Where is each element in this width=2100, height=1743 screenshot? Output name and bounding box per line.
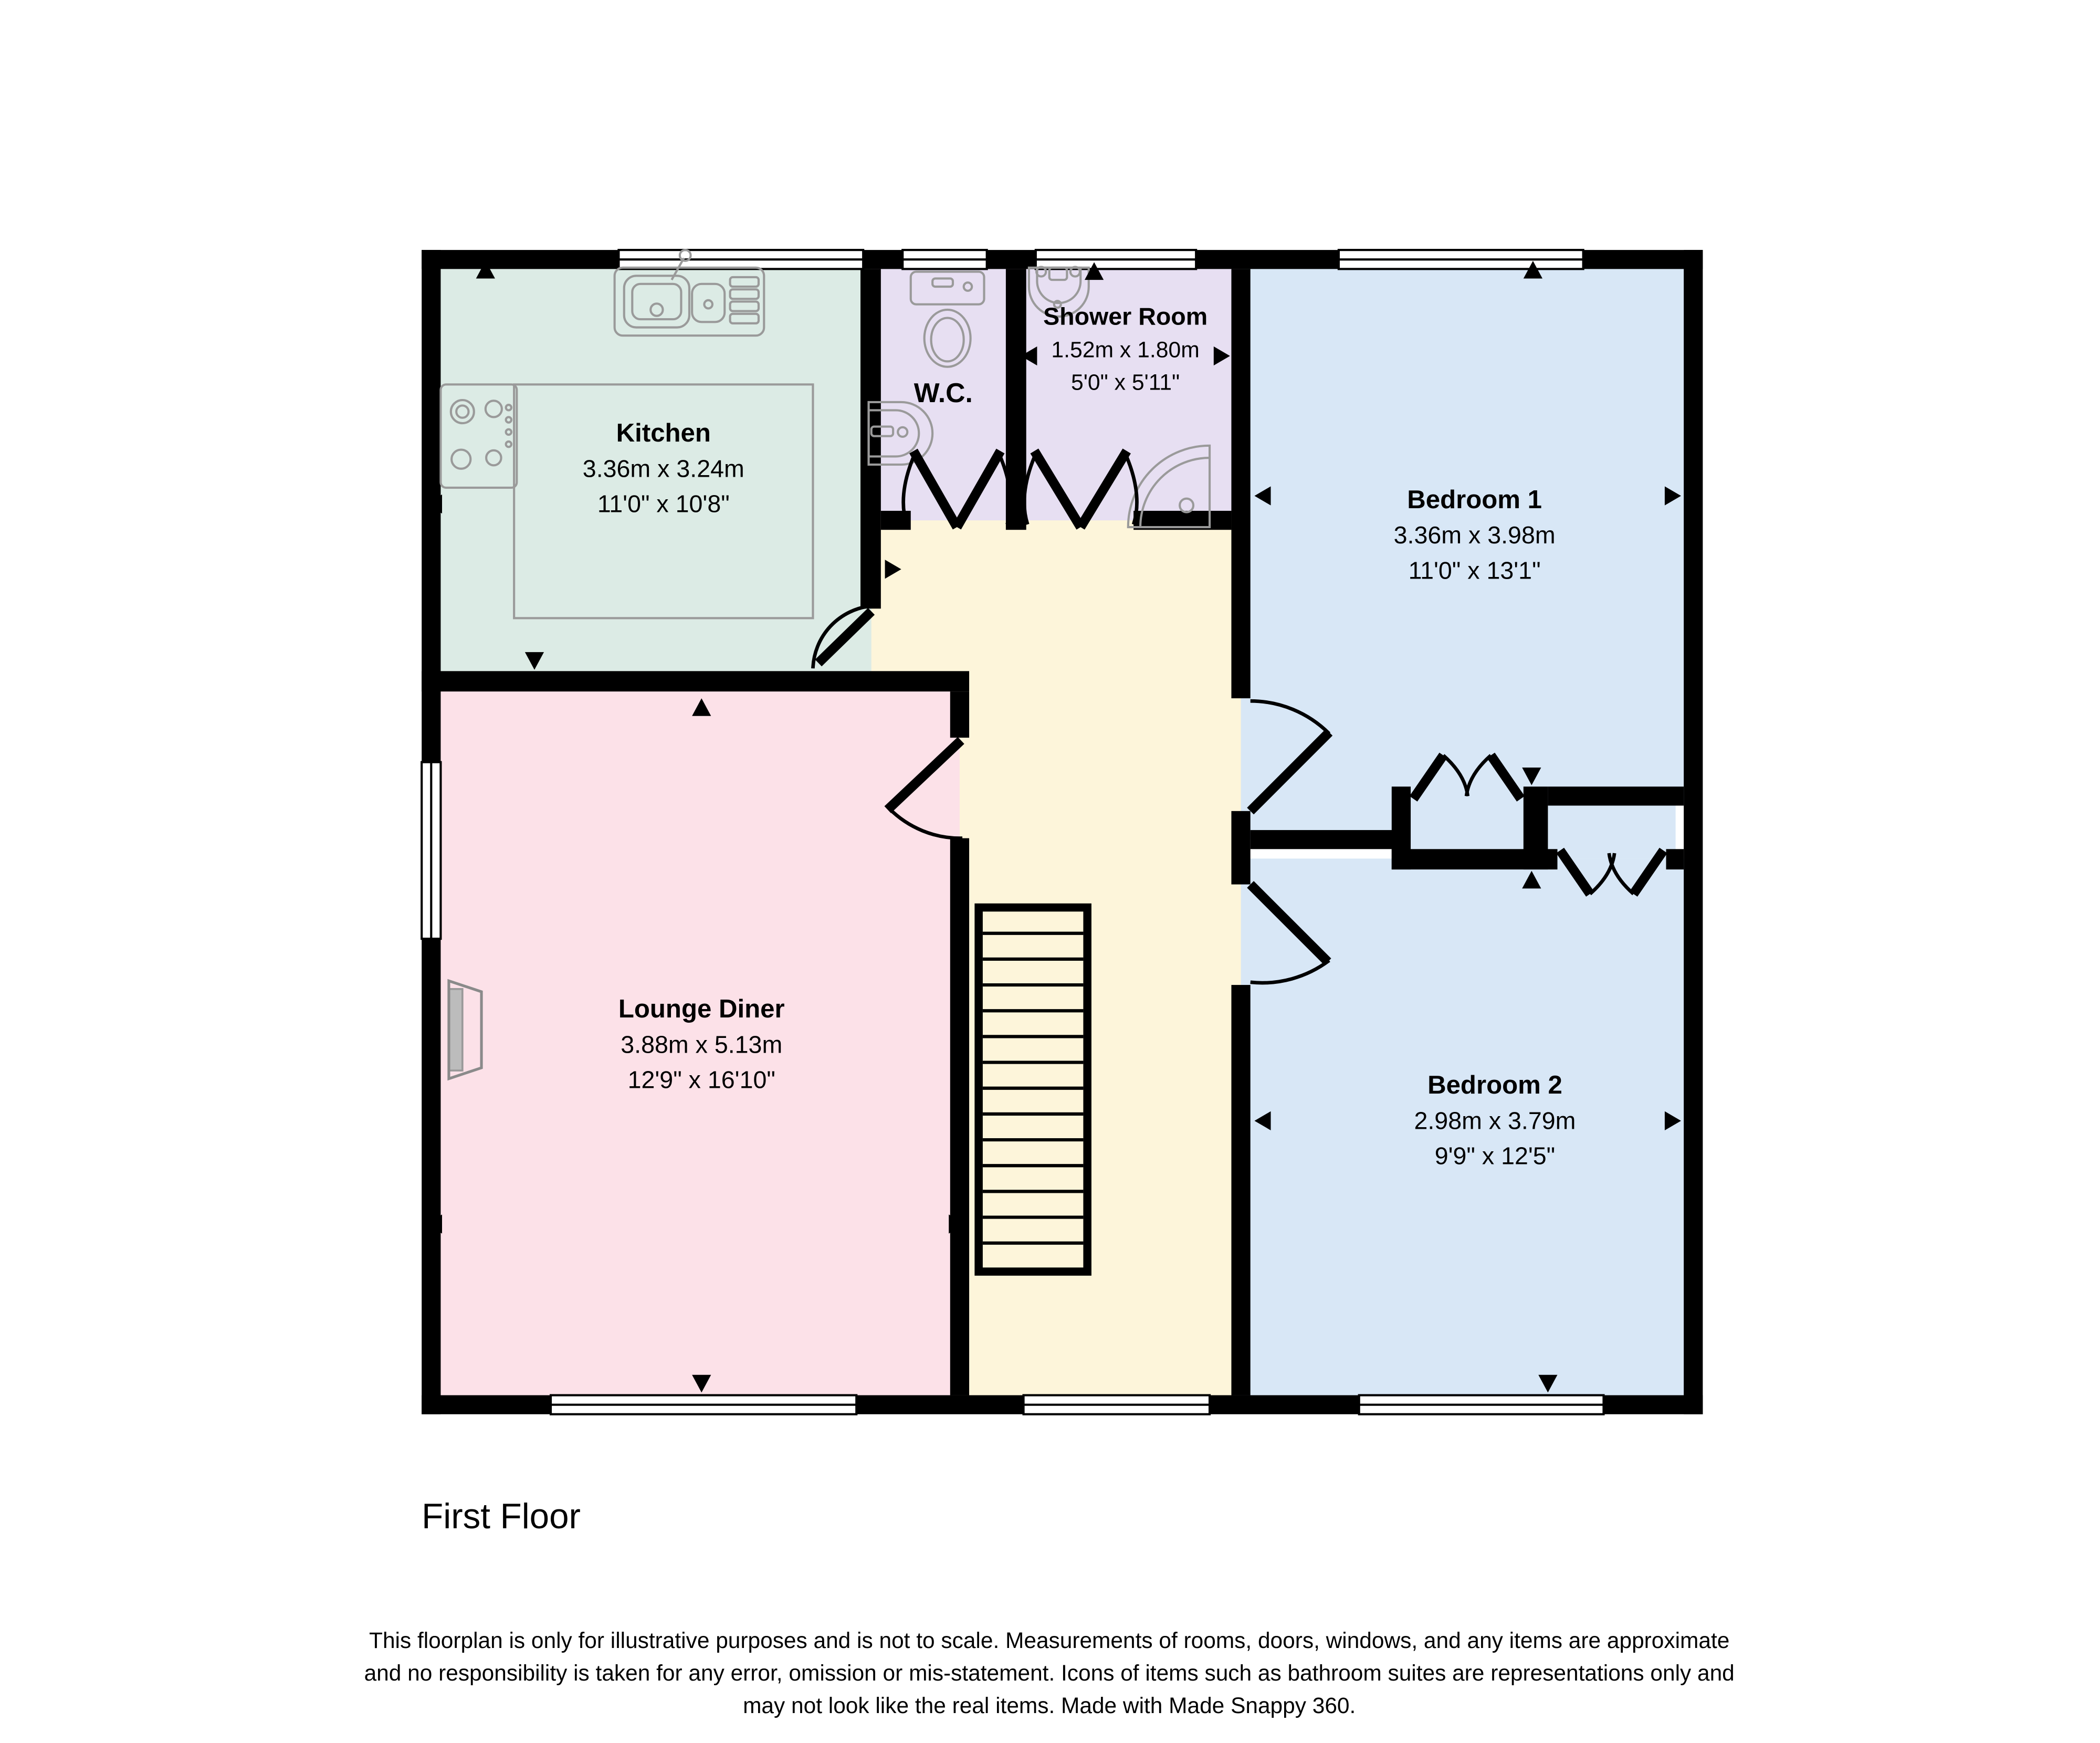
window-icon xyxy=(1359,1395,1604,1414)
disclaimer-line-1: This floorplan is only for illustrative … xyxy=(369,1628,1729,1653)
window-icon xyxy=(902,250,986,269)
wc-label: W.C. xyxy=(914,377,973,408)
kitchen-label: Kitchen xyxy=(616,418,711,447)
window-icon xyxy=(618,250,863,269)
kitchen-dim-imperial: 11'0" x 10'8" xyxy=(597,490,730,518)
lounge-dim-metric: 3.88m x 5.13m xyxy=(621,1031,782,1058)
bedroom1-label: Bedroom 1 xyxy=(1407,485,1542,514)
stairs-icon xyxy=(979,908,1087,1272)
disclaimer-line-3: may not look like the real items. Made w… xyxy=(743,1693,1356,1718)
shower-dim-imperial: 5'0" x 5'11" xyxy=(1071,370,1180,395)
disclaimer-line-2: and no responsibility is taken for any e… xyxy=(364,1661,1735,1685)
bedroom2-label: Bedroom 2 xyxy=(1427,1070,1562,1099)
lounge-dim-imperial: 12'9" x 16'10" xyxy=(628,1066,775,1094)
shower-dim-metric: 1.52m x 1.80m xyxy=(1051,338,1199,363)
shower-label: Shower Room xyxy=(1043,302,1207,330)
window-icon xyxy=(551,1395,856,1414)
kitchen-dim-metric: 3.36m x 3.24m xyxy=(583,455,744,482)
window-icon xyxy=(1036,250,1196,269)
window-icon xyxy=(1024,1395,1210,1414)
floorplan-canvas: Kitchen 3.36m x 3.24m 11'0" x 10'8" W.C.… xyxy=(0,0,2100,1743)
room-bedroom1-nook xyxy=(1241,259,1405,839)
window-icon xyxy=(422,762,440,939)
bedroom1-dim-imperial: 11'0" x 13'1" xyxy=(1409,556,1541,584)
bedroom2-dim-metric: 2.98m x 3.79m xyxy=(1414,1107,1576,1134)
window-icon xyxy=(1339,250,1583,269)
floor-title: First Floor xyxy=(422,1497,581,1536)
bedroom2-dim-imperial: 9'9" x 12'5" xyxy=(1435,1142,1555,1170)
bedroom1-dim-metric: 3.36m x 3.98m xyxy=(1394,521,1556,549)
lounge-label: Lounge Diner xyxy=(618,994,785,1023)
